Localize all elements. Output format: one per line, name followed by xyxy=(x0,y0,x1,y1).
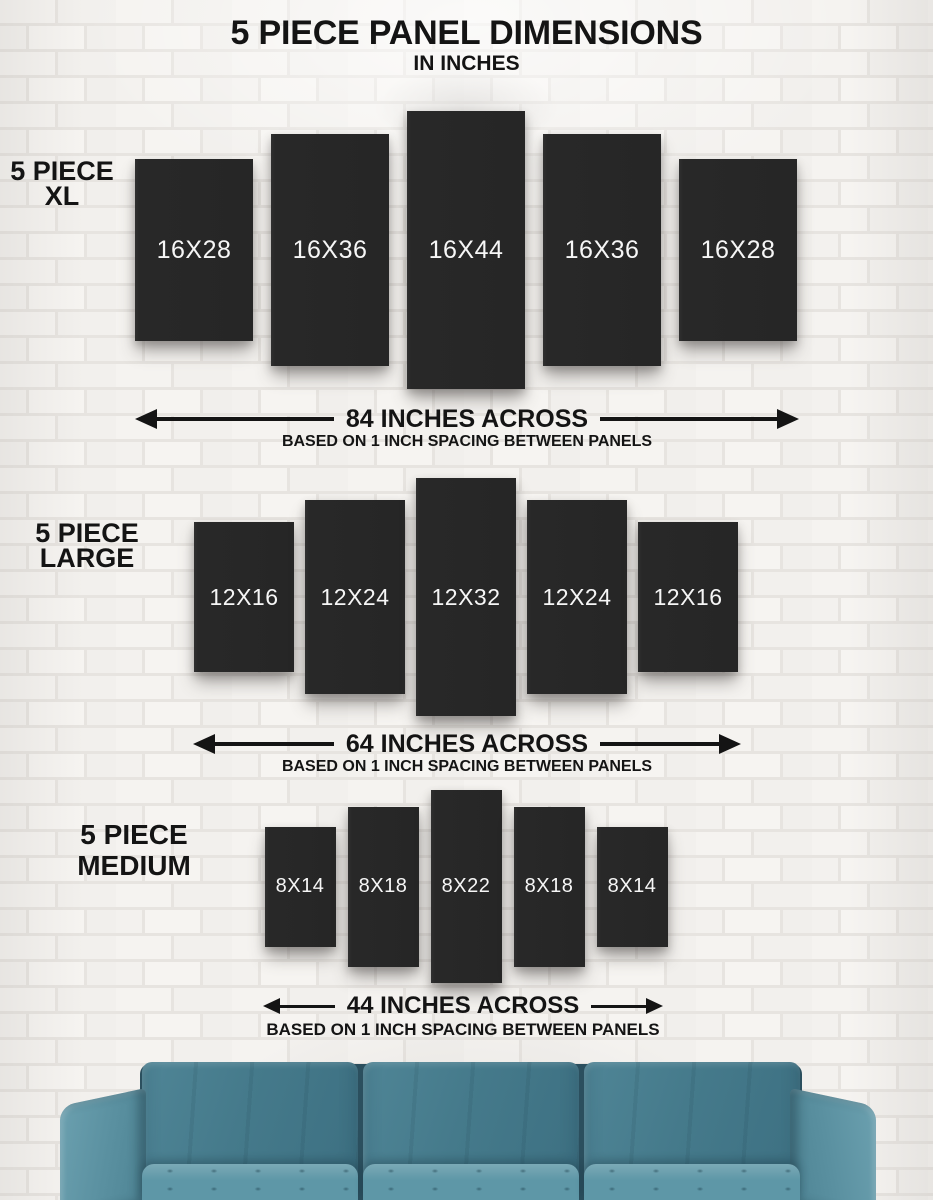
canvas-panel: 12X24 xyxy=(527,500,627,694)
sofa-arm-left xyxy=(60,1088,146,1200)
sofa-seat-cushion xyxy=(584,1164,800,1200)
arrowhead-left-icon xyxy=(135,409,157,429)
canvas-panel: 16X36 xyxy=(543,134,661,366)
page-subtitle: IN INCHES xyxy=(0,53,933,75)
sofa-seat xyxy=(142,1164,800,1200)
canvas-panel: 12X16 xyxy=(638,522,738,672)
canvas-panel: 8X14 xyxy=(597,827,668,947)
panel-row-large: 12X16 12X24 12X32 12X24 12X16 xyxy=(194,478,738,716)
arrowhead-left-icon xyxy=(193,734,215,754)
panel-size-label: 16X36 xyxy=(293,236,368,265)
panel-size-label: 12X24 xyxy=(320,584,389,611)
panel-size-label: 12X16 xyxy=(653,584,722,611)
panel-size-label: 12X16 xyxy=(209,584,278,611)
canvas-panel: 8X18 xyxy=(348,807,419,967)
panel-size-label: 8X18 xyxy=(525,875,574,898)
arrow-line-segment xyxy=(591,1005,646,1008)
panel-row-medium: 8X14 8X18 8X22 8X18 8X14 xyxy=(264,790,668,983)
arrow-line-segment xyxy=(600,417,777,421)
canvas-panel: 16X44 xyxy=(407,111,525,389)
title-block: 5 PIECE PANEL DIMENSIONS IN INCHES xyxy=(0,14,933,75)
panel-size-label: 8X14 xyxy=(608,875,657,898)
arrow-width-label: 84 INCHES ACROSS xyxy=(334,406,600,432)
panel-size-label: 16X28 xyxy=(701,236,776,265)
product-dimension-infographic: 5 PIECE PANEL DIMENSIONS IN INCHES 5 PIE… xyxy=(0,0,933,1200)
canvas-panel: 12X32 xyxy=(416,478,516,716)
panel-size-label: 16X44 xyxy=(429,236,504,265)
arrowhead-left-icon xyxy=(263,998,280,1014)
size-label-line2: MEDIUM xyxy=(34,850,234,881)
panel-size-label: 12X24 xyxy=(542,584,611,611)
canvas-panel: 8X22 xyxy=(431,790,502,983)
size-label-line2: LARGE xyxy=(0,546,174,571)
panel-size-label: 8X14 xyxy=(276,875,325,898)
panel-size-label: 8X22 xyxy=(442,875,491,898)
canvas-panel: 16X28 xyxy=(135,159,253,341)
panel-row-xl: 16X28 16X36 16X44 16X36 16X28 xyxy=(135,111,797,389)
panel-size-label: 16X36 xyxy=(565,236,640,265)
arrow-line-segment xyxy=(215,742,334,746)
canvas-panel: 16X36 xyxy=(271,134,389,366)
canvas-panel: 8X18 xyxy=(514,807,585,967)
size-label-xl: 5 PIECE XL xyxy=(0,159,124,209)
arrow-width-label: 44 INCHES ACROSS xyxy=(335,993,592,1019)
canvas-panel: 16X28 xyxy=(679,159,797,341)
sofa-arm-right xyxy=(790,1088,876,1200)
arrow-spacing-note: BASED ON 1 INCH SPACING BETWEEN PANELS xyxy=(282,758,652,776)
sofa-seat-cushion xyxy=(142,1164,358,1200)
size-label-line2: XL xyxy=(0,184,124,209)
canvas-panel: 8X14 xyxy=(265,827,336,947)
dimension-arrow-xl: 84 INCHES ACROSS BASED ON 1 INCH SPACING… xyxy=(135,406,799,451)
canvas-panel: 12X24 xyxy=(305,500,405,694)
dimension-arrow-medium: 44 INCHES ACROSS BASED ON 1 INCH SPACING… xyxy=(263,993,663,1040)
panel-size-label: 16X28 xyxy=(157,236,232,265)
panel-size-label: 12X32 xyxy=(431,584,500,611)
size-label-medium: 5 PIECE MEDIUM xyxy=(34,819,234,881)
arrow-spacing-note: BASED ON 1 INCH SPACING BETWEEN PANELS xyxy=(266,1020,659,1040)
arrow-line-segment xyxy=(280,1005,335,1008)
arrowhead-right-icon xyxy=(777,409,799,429)
dimension-arrow-large: 64 INCHES ACROSS BASED ON 1 INCH SPACING… xyxy=(193,731,741,776)
sofa-seat-cushion xyxy=(363,1164,579,1200)
dimension-arrow-line: 44 INCHES ACROSS xyxy=(263,993,663,1019)
arrow-line-segment xyxy=(600,742,719,746)
arrowhead-right-icon xyxy=(646,998,663,1014)
dimension-arrow-line: 84 INCHES ACROSS xyxy=(135,406,799,432)
sofa-image xyxy=(58,1058,878,1200)
size-label-large: 5 PIECE LARGE xyxy=(0,521,174,571)
panel-size-label: 8X18 xyxy=(359,875,408,898)
arrowhead-right-icon xyxy=(719,734,741,754)
arrow-spacing-note: BASED ON 1 INCH SPACING BETWEEN PANELS xyxy=(282,433,652,451)
dimension-arrow-line: 64 INCHES ACROSS xyxy=(193,731,741,757)
arrow-line-segment xyxy=(157,417,334,421)
canvas-panel: 12X16 xyxy=(194,522,294,672)
arrow-width-label: 64 INCHES ACROSS xyxy=(334,731,600,757)
size-label-line1: 5 PIECE xyxy=(34,819,234,850)
page-title: 5 PIECE PANEL DIMENSIONS xyxy=(0,14,933,52)
